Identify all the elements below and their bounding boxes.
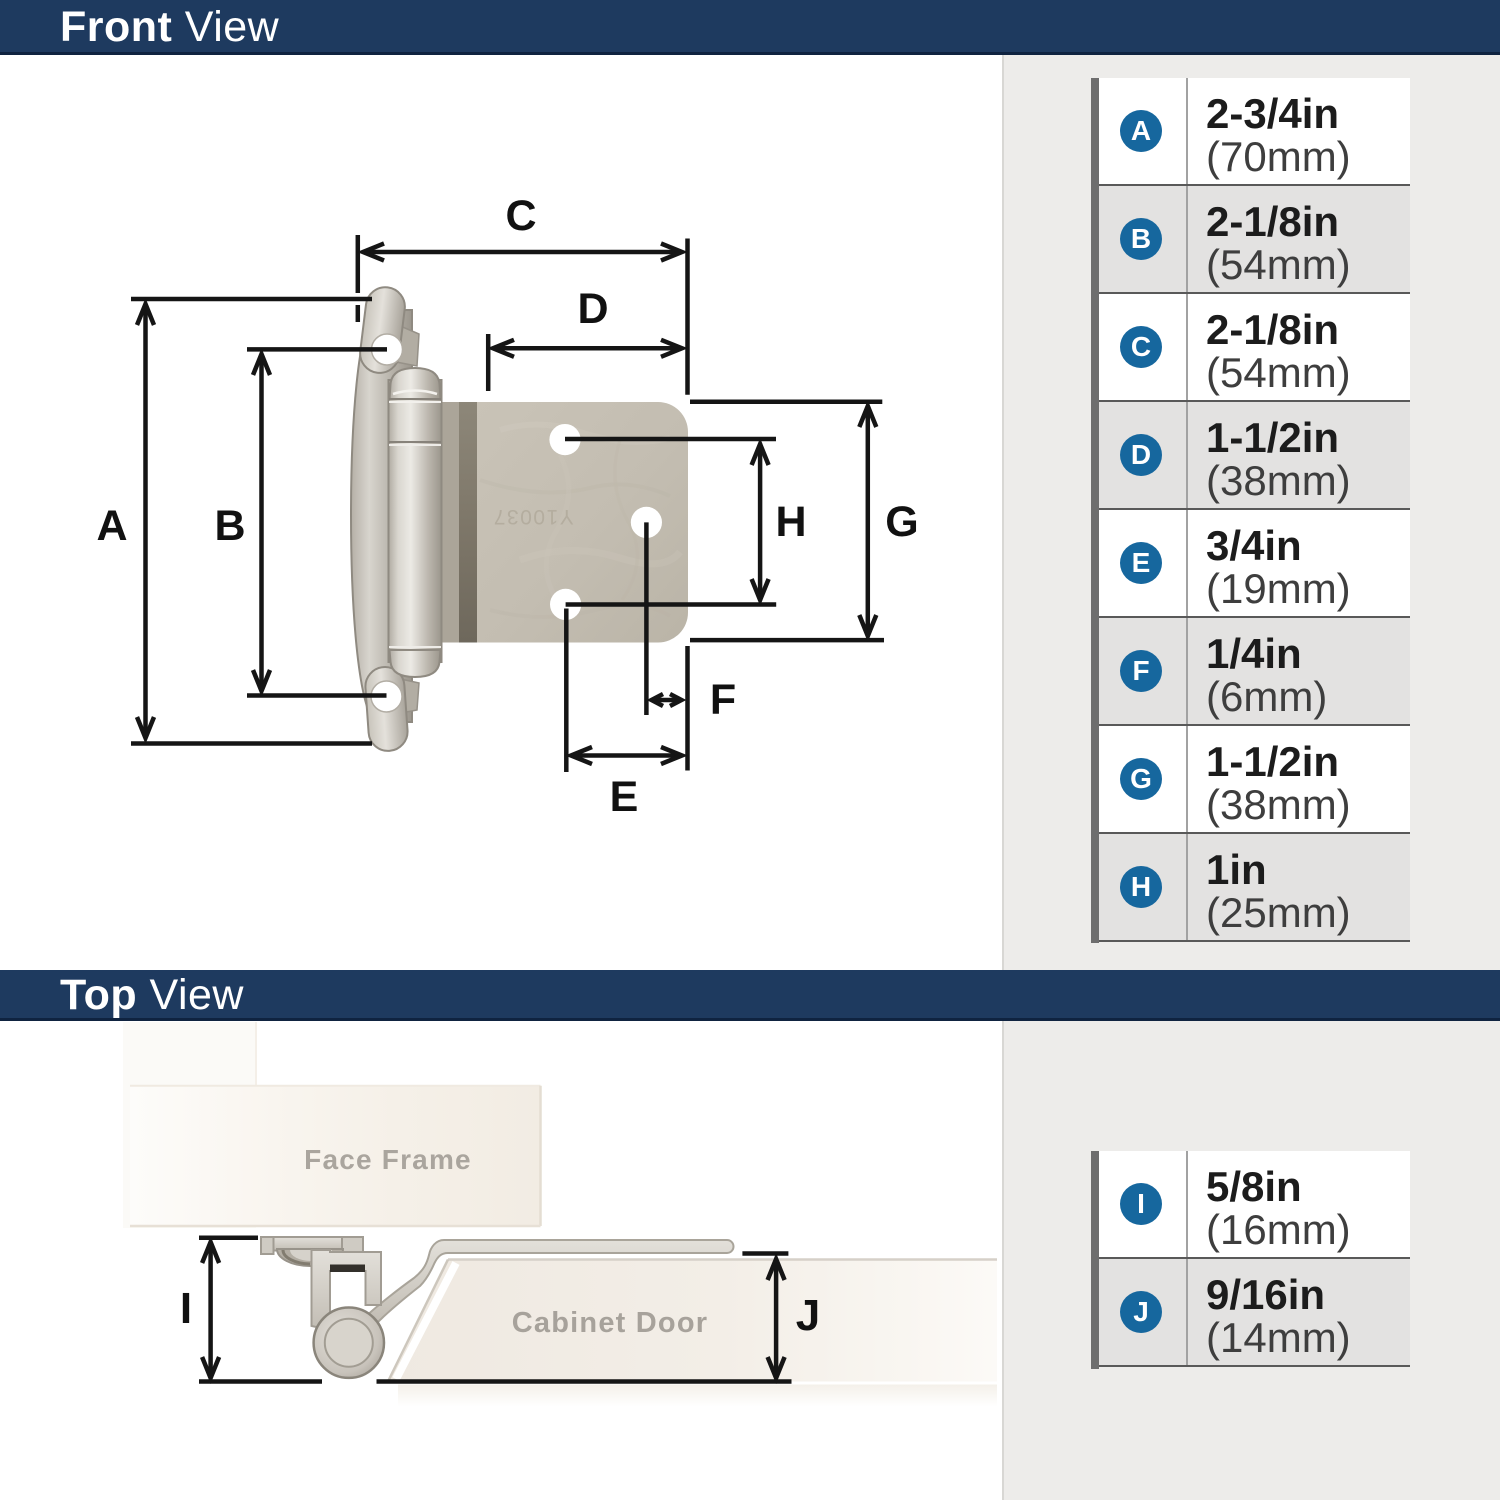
svg-text:D: D xyxy=(577,285,608,333)
svg-text:H: H xyxy=(775,498,806,546)
svg-text:C: C xyxy=(505,192,536,240)
svg-text:B: B xyxy=(214,502,245,550)
svg-text:I: I xyxy=(180,1284,192,1333)
svg-text:Face Frame: Face Frame xyxy=(304,1144,472,1175)
svg-text:F: F xyxy=(710,676,736,724)
svg-text:Cabinet Door: Cabinet Door xyxy=(512,1307,708,1339)
svg-text:J: J xyxy=(796,1291,820,1340)
svg-text:A: A xyxy=(96,502,127,550)
svg-text:G: G xyxy=(885,498,918,546)
svg-text:E: E xyxy=(610,773,639,821)
svg-text:Y10037: Y10037 xyxy=(492,505,573,528)
